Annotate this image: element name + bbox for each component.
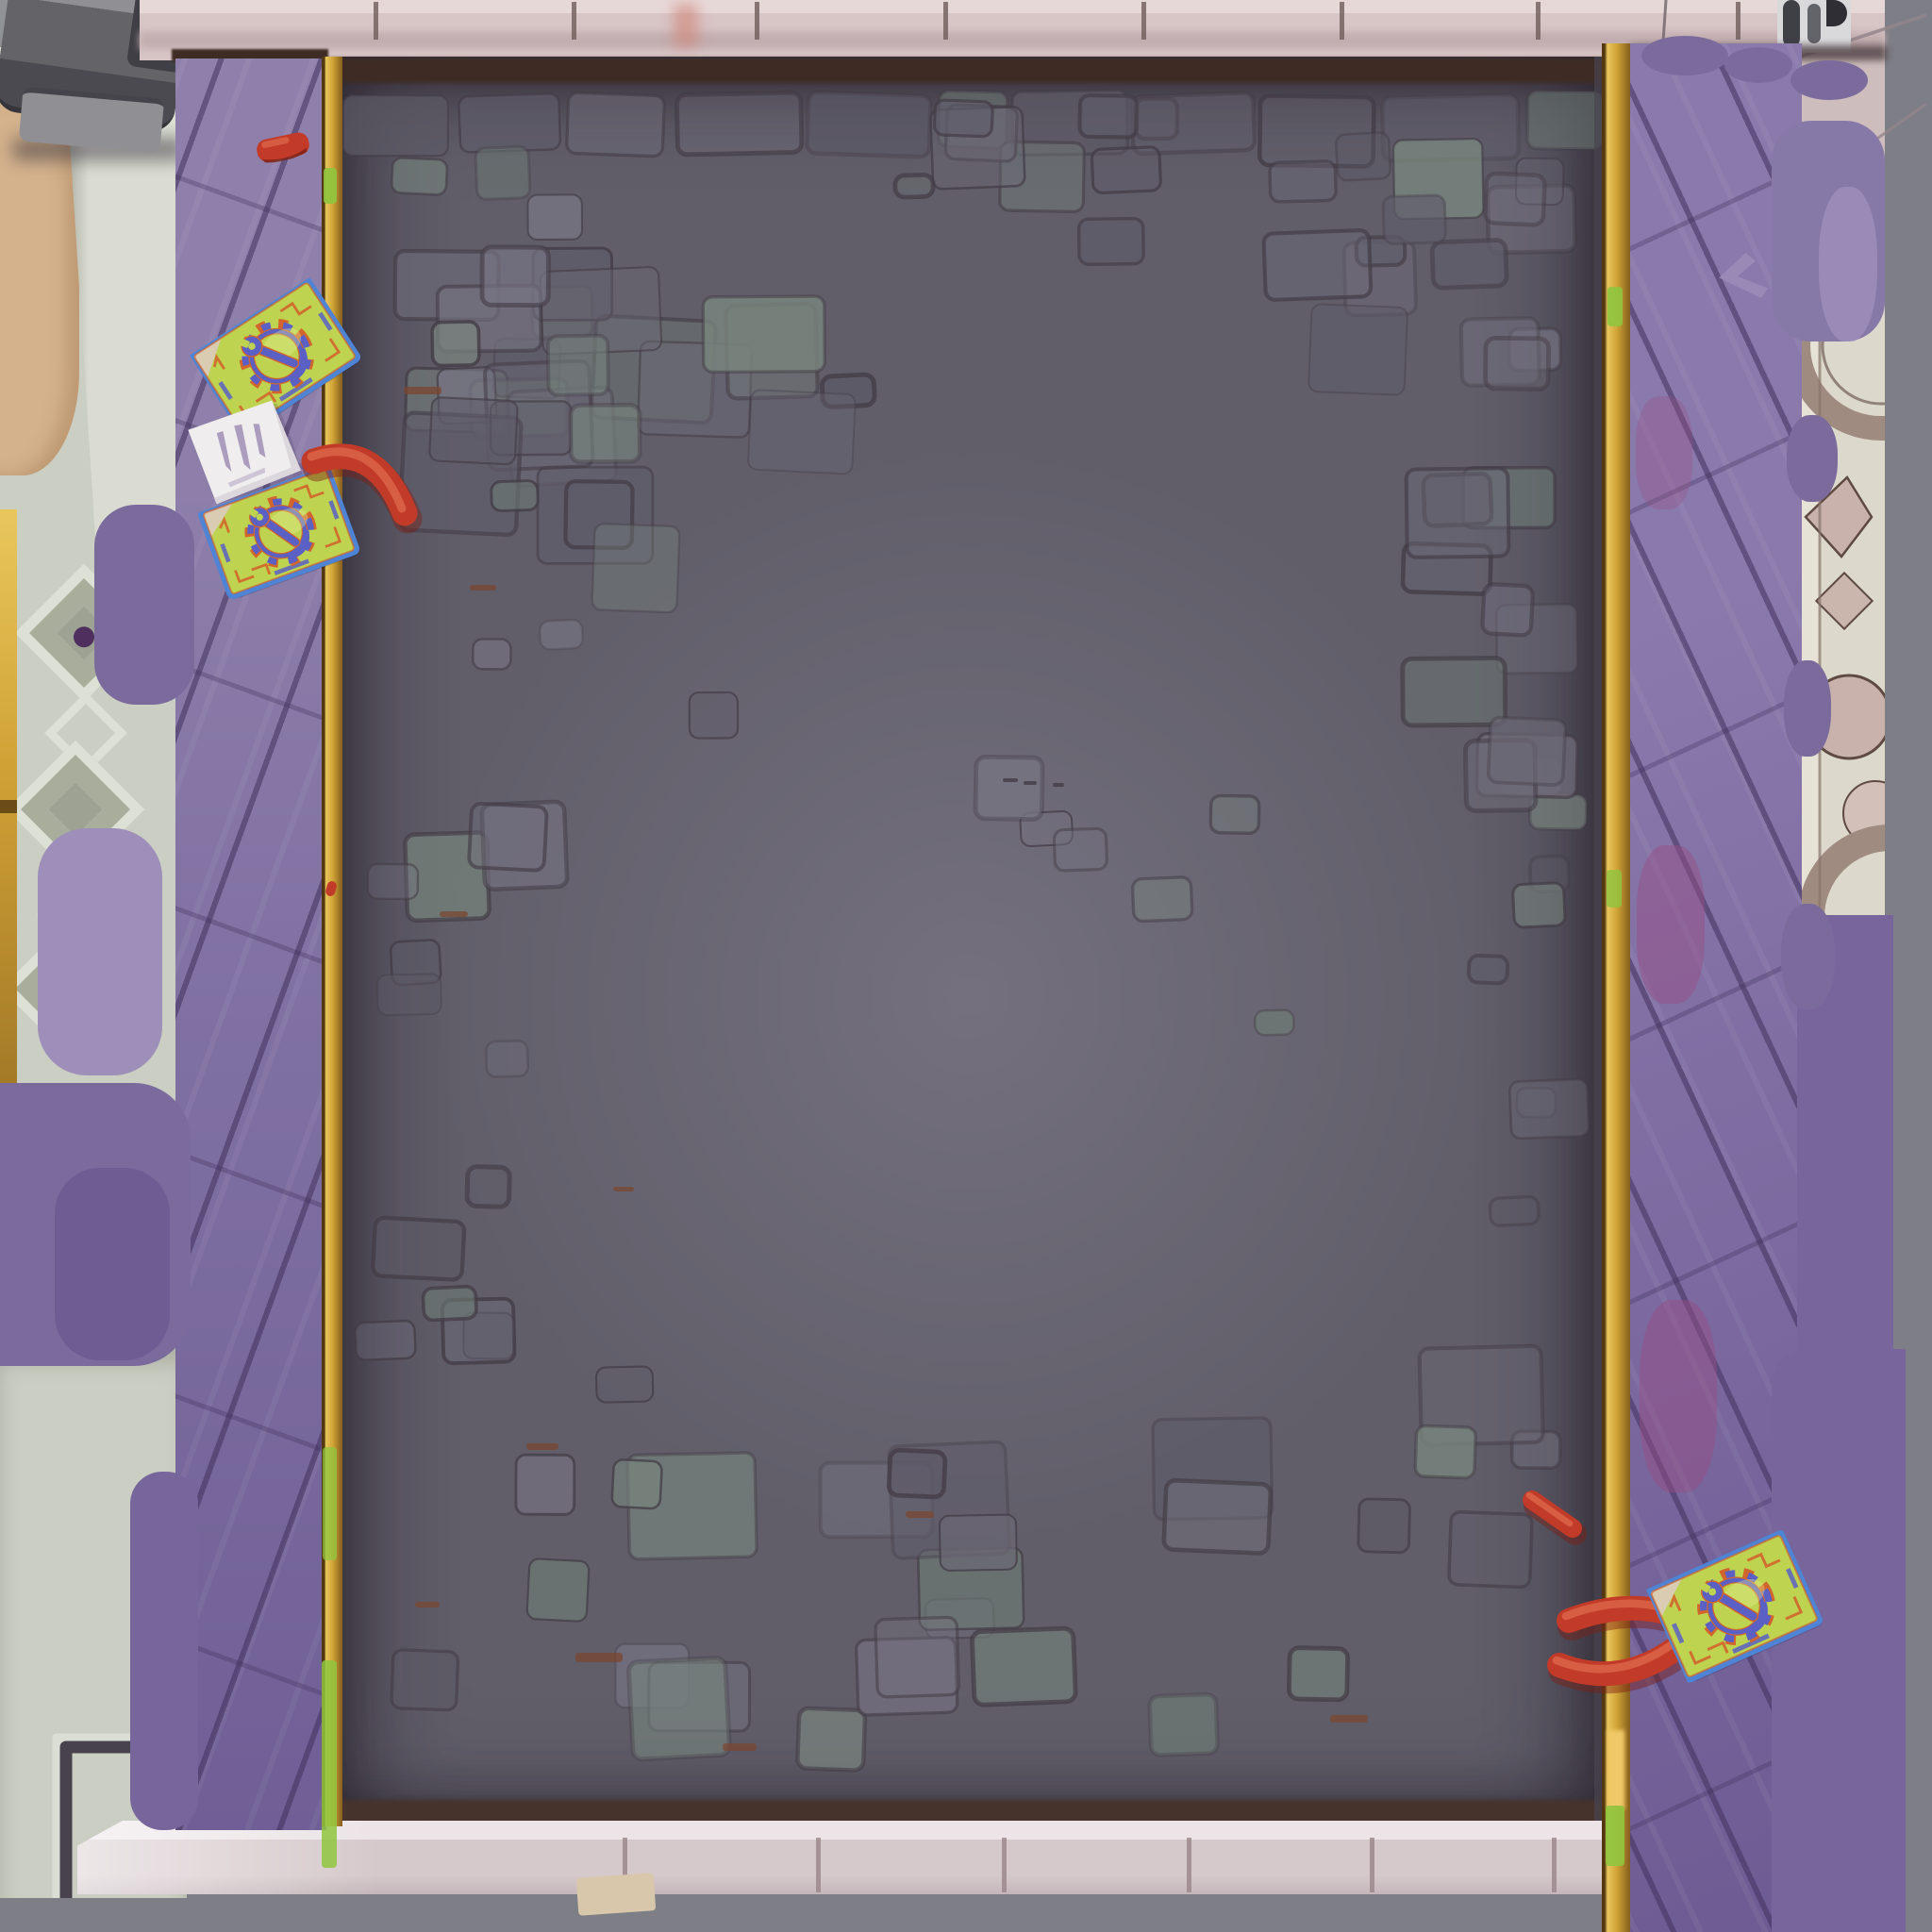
red-eraser-debris	[255, 130, 311, 166]
red-paint-speck	[325, 880, 338, 897]
game-map-arena-tile	[0, 0, 1932, 1932]
debris-objects	[0, 0, 1932, 1932]
sausage-debris-right-b	[1557, 1637, 1688, 1679]
sausage-debris-right-small	[1529, 1495, 1575, 1534]
